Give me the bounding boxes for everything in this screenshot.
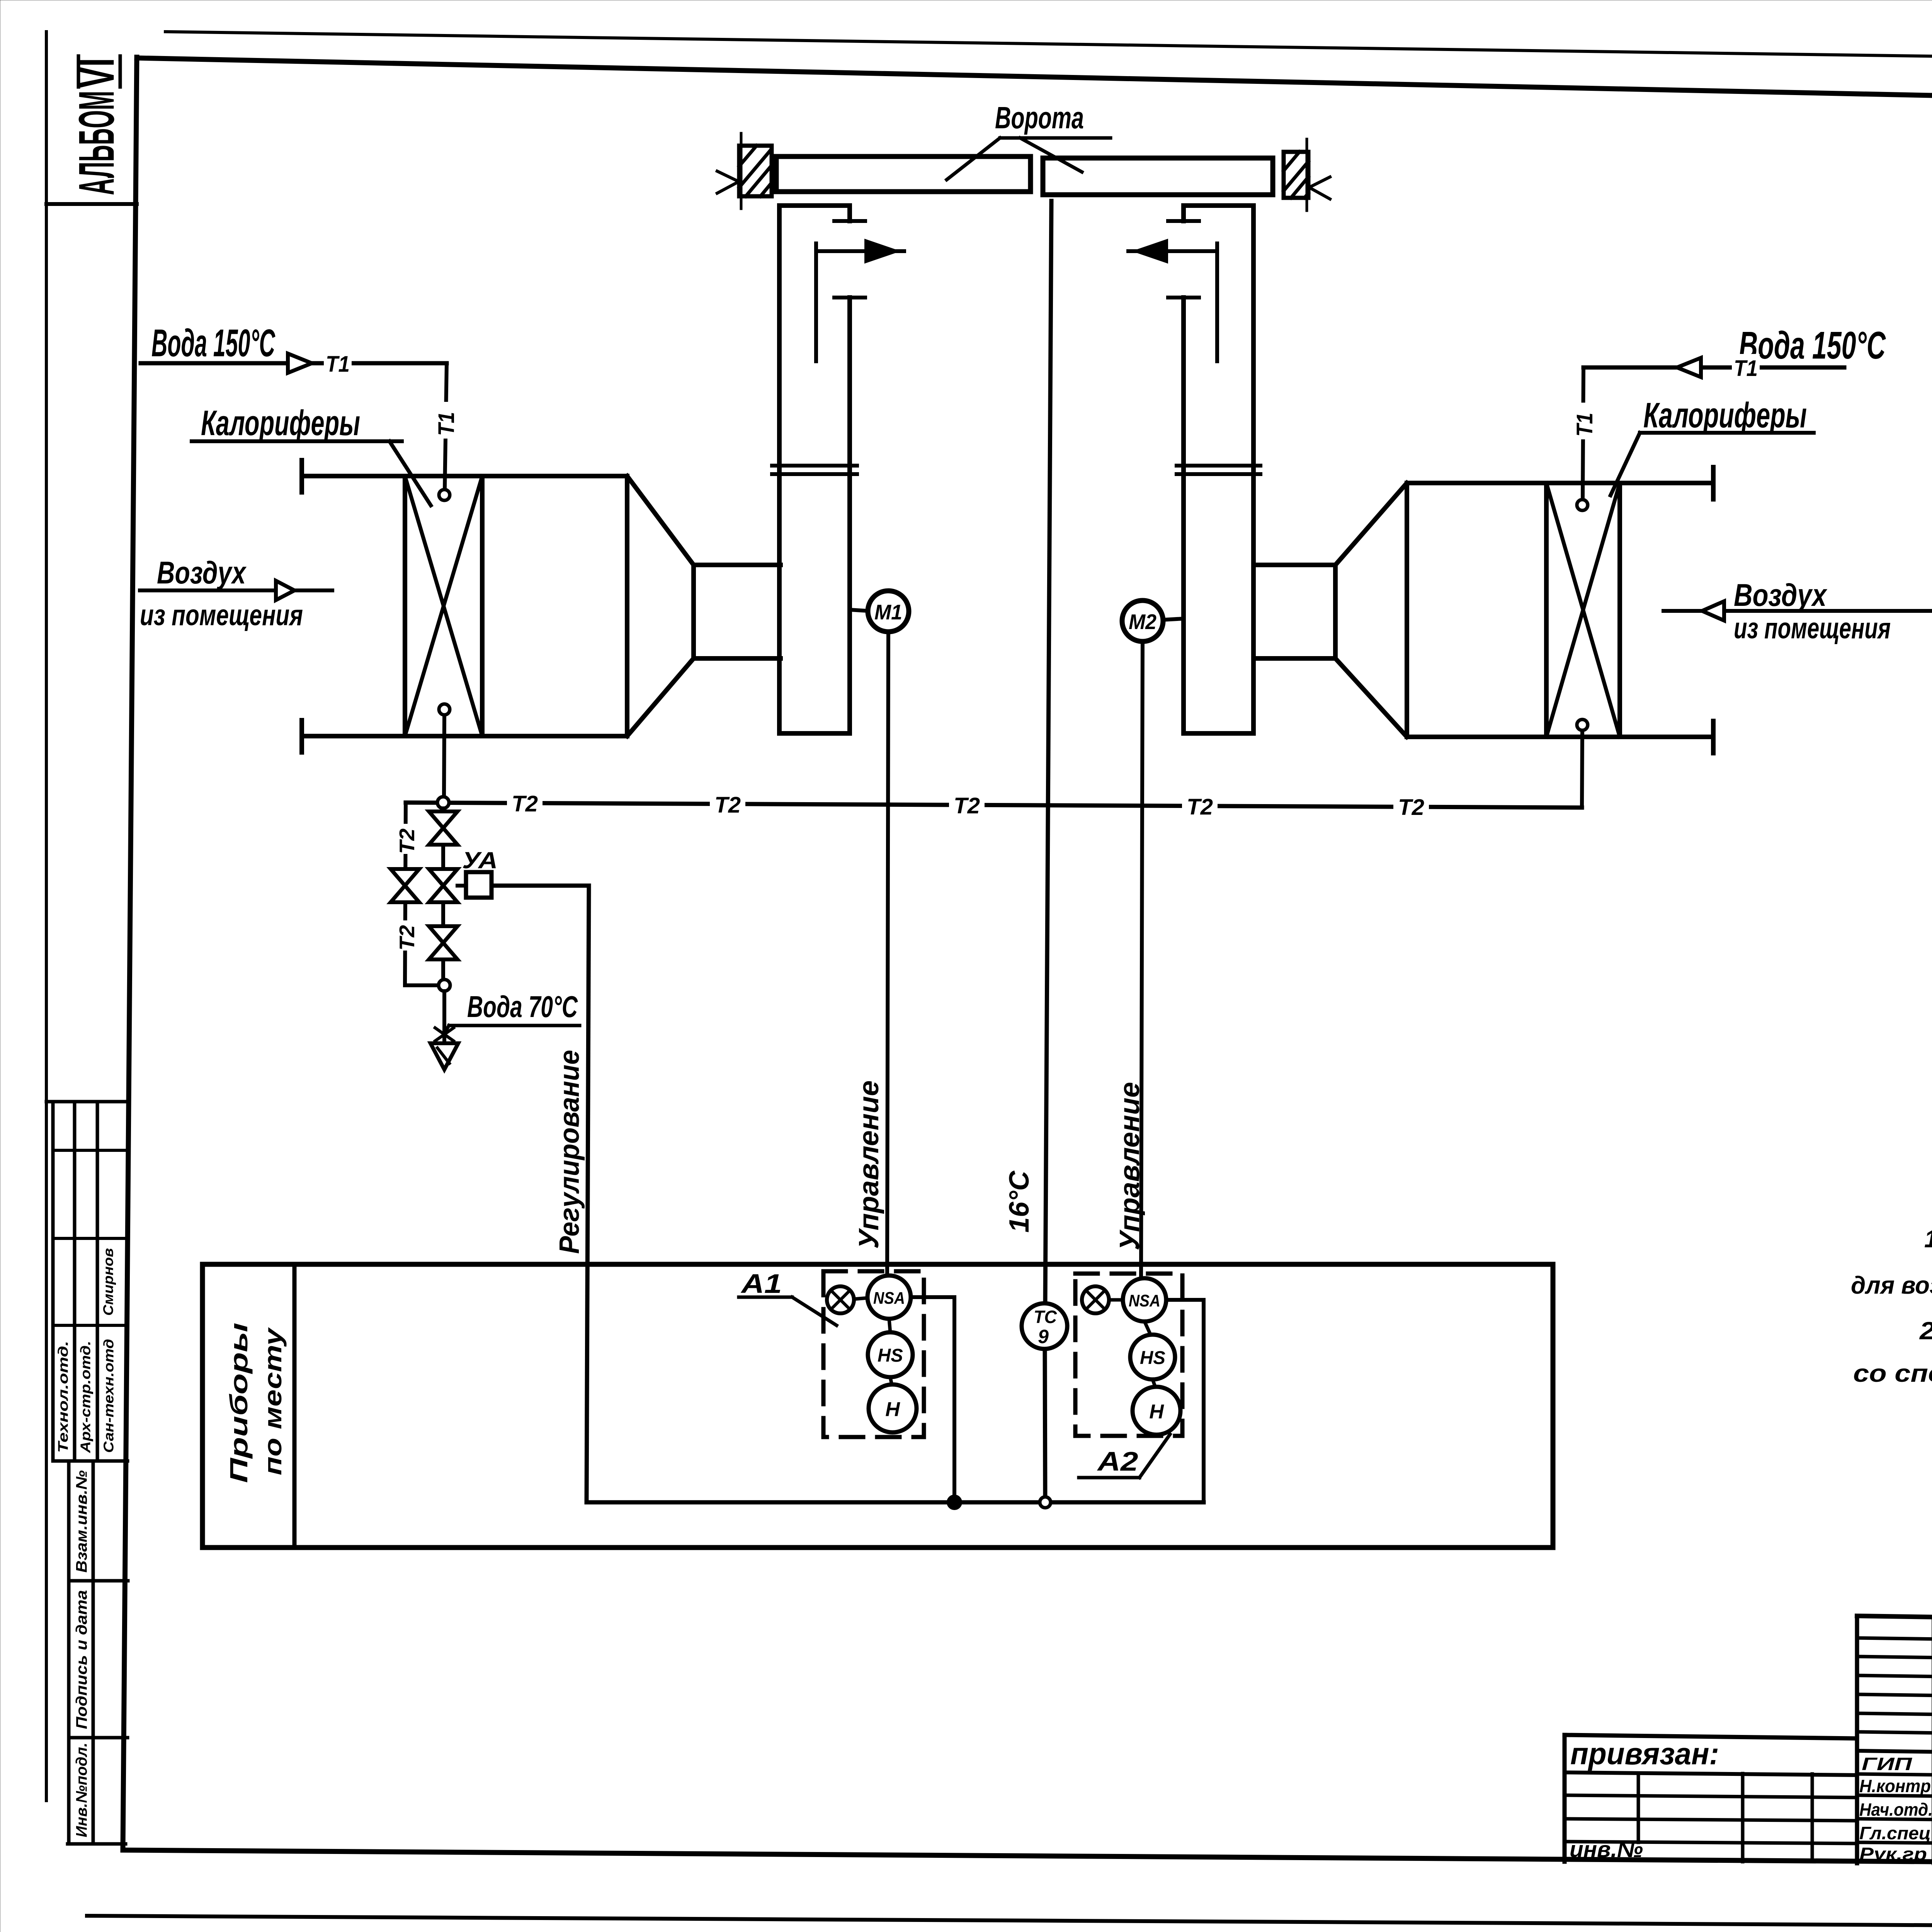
svg-text:Вода 150°С: Вода 150°С xyxy=(151,321,276,365)
svg-text:1.Схема составлена для воздушн: 1.Схема составлена для воздушно-тепловой… xyxy=(1924,1225,1932,1253)
svg-text:Рук.гр: Рук.гр xyxy=(1859,1844,1927,1864)
svg-text:А1: А1 xyxy=(740,1269,782,1299)
svg-text:ТС: ТС xyxy=(1034,1307,1057,1327)
svg-text:Сан-техн.отд: Сан-техн.отд xyxy=(101,1339,117,1453)
svg-text:Гл.спец: Гл.спец xyxy=(1859,1823,1931,1843)
svg-text:Взам.инв.№: Взам.инв.№ xyxy=(73,1470,90,1573)
svg-text:Воздух: Воздух xyxy=(1734,578,1828,613)
svg-text:Т2: Т2 xyxy=(1187,794,1213,820)
svg-text:из помещения: из помещения xyxy=(140,599,303,632)
svg-text:из помещения: из помещения xyxy=(1734,612,1891,645)
svg-text:Вода 150°С: Вода 150°С xyxy=(1739,324,1886,367)
svg-text:Т2: Т2 xyxy=(954,793,980,818)
svg-text:АЛЬБОМ: АЛЬБОМ xyxy=(68,91,124,195)
svg-text:Т1: Т1 xyxy=(326,352,350,377)
svg-text:Арх-стр.отд.: Арх-стр.отд. xyxy=(78,1341,94,1453)
svg-text:А2: А2 xyxy=(1097,1446,1138,1476)
svg-text:Регулирование: Регулирование xyxy=(554,1050,585,1254)
svg-text:Т2: Т2 xyxy=(395,828,419,854)
svg-text:по месту: по месту xyxy=(259,1327,287,1475)
svg-text:HS: HS xyxy=(878,1345,903,1366)
svg-text:Т2: Т2 xyxy=(512,791,538,816)
svg-text:Ворота: Ворота xyxy=(995,100,1084,135)
svg-text:Технол.отд.: Технол.отд. xyxy=(55,1341,71,1453)
svg-text:9: 9 xyxy=(1038,1326,1049,1347)
svg-text:H: H xyxy=(885,1398,900,1421)
svg-text:Нач.отд.: Нач.отд. xyxy=(1859,1799,1932,1820)
svg-text:Т1: Т1 xyxy=(434,412,459,436)
svg-text:Калориферы: Калориферы xyxy=(201,403,360,443)
svg-text:Т1: Т1 xyxy=(1572,413,1597,437)
svg-text:М1: М1 xyxy=(874,600,902,624)
svg-text:М2: М2 xyxy=(1129,610,1156,634)
svg-text:NSA: NSA xyxy=(1129,1291,1160,1310)
svg-text:Т1: Т1 xyxy=(1734,356,1758,381)
svg-text:ГИП: ГИП xyxy=(1862,1754,1912,1774)
svg-text:со спецификацией А.С01: со спецификацией А.С01 xyxy=(1853,1359,1932,1387)
svg-text:Т2: Т2 xyxy=(1398,795,1424,820)
svg-text:привязан:: привязан: xyxy=(1570,1736,1719,1771)
svg-text:NSA: NSA xyxy=(873,1289,905,1308)
svg-text:H: H xyxy=(1149,1401,1164,1423)
svg-text:Управление: Управление xyxy=(854,1080,884,1249)
svg-text:VI: VI xyxy=(68,58,124,88)
svg-text:Т2: Т2 xyxy=(395,925,419,951)
svg-text:Воздух: Воздух xyxy=(157,555,247,590)
svg-text:2.Позиции на приборы указаны в: 2.Позиции на приборы указаны в соответст… xyxy=(1919,1317,1932,1345)
svg-text:HS: HS xyxy=(1140,1348,1165,1368)
svg-text:Инв.№подл.: Инв.№подл. xyxy=(73,1743,90,1837)
svg-text:Т2: Т2 xyxy=(714,793,741,818)
svg-text:УА: УА xyxy=(462,847,498,873)
svg-text:Управление: Управление xyxy=(1114,1082,1145,1250)
svg-text:Калориферы: Калориферы xyxy=(1643,396,1807,435)
svg-text:инв.№: инв.№ xyxy=(1570,1837,1643,1862)
svg-text:Подпись и дата: Подпись и дата xyxy=(73,1590,90,1729)
svg-text:для воздушно-тепловых завес У2: для воздушно-тепловых завес У2,У3 схемы … xyxy=(1851,1271,1932,1299)
svg-text:Вода 70°С: Вода 70°С xyxy=(467,990,578,1024)
svg-text:Н.контр: Н.контр xyxy=(1859,1776,1931,1796)
svg-text:16°С: 16°С xyxy=(1004,1170,1035,1233)
svg-text:Приборы: Приборы xyxy=(225,1323,253,1483)
svg-text:Смирнов: Смирнов xyxy=(100,1248,116,1316)
